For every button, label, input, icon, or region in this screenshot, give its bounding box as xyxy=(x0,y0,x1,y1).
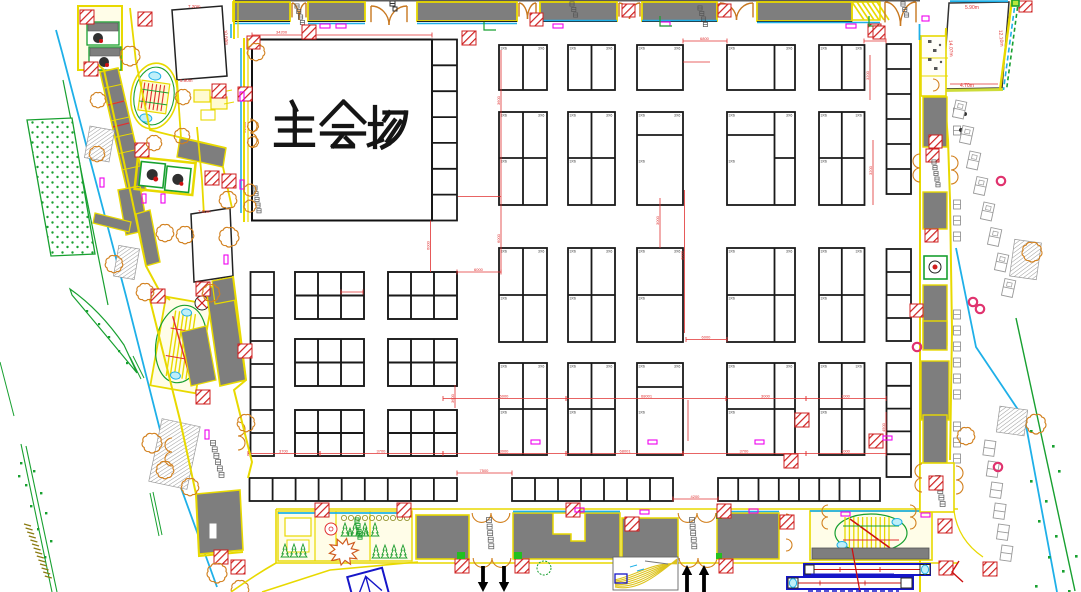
svg-text:3X6: 3X6 xyxy=(639,297,645,301)
svg-text:3X6: 3X6 xyxy=(639,250,645,254)
svg-text:7.00m: 7.00m xyxy=(198,209,211,214)
svg-text:3X6: 3X6 xyxy=(606,47,612,51)
svg-text:6000: 6000 xyxy=(426,240,431,250)
svg-text:3700: 3700 xyxy=(377,448,387,453)
svg-text:3X6: 3X6 xyxy=(856,114,862,118)
svg-text:3X6: 3X6 xyxy=(501,411,507,415)
svg-text:3X6: 3X6 xyxy=(786,250,792,254)
svg-text:4500: 4500 xyxy=(881,422,886,432)
svg-text:6800: 6800 xyxy=(700,36,710,41)
svg-text:3X6: 3X6 xyxy=(606,114,612,118)
svg-text:6000: 6000 xyxy=(500,393,510,398)
svg-text:68001: 68001 xyxy=(641,393,653,398)
svg-text:3X6: 3X6 xyxy=(786,114,792,118)
svg-text:5.90m: 5.90m xyxy=(965,5,979,11)
svg-text:3X6: 3X6 xyxy=(729,47,735,51)
svg-text:3000: 3000 xyxy=(500,448,510,453)
svg-text:3X6: 3X6 xyxy=(729,297,735,301)
svg-text:3X6: 3X6 xyxy=(570,365,576,369)
svg-text:3X6: 3X6 xyxy=(501,47,507,51)
svg-text:3X6: 3X6 xyxy=(639,365,645,369)
svg-text:3700: 3700 xyxy=(279,448,289,453)
svg-text:14.07m: 14.07m xyxy=(947,40,954,57)
svg-text:3X6: 3X6 xyxy=(821,114,827,118)
svg-text:3X6: 3X6 xyxy=(501,114,507,118)
svg-text:3X6: 3X6 xyxy=(501,365,507,369)
svg-text:6000: 6000 xyxy=(702,334,712,339)
svg-text:3X6: 3X6 xyxy=(639,160,645,164)
svg-text:3X6: 3X6 xyxy=(538,47,544,51)
svg-text:3X6: 3X6 xyxy=(674,365,680,369)
svg-text:3X6: 3X6 xyxy=(674,47,680,51)
svg-text:3X6: 3X6 xyxy=(570,297,576,301)
svg-text:3X6: 3X6 xyxy=(639,411,645,415)
svg-text:6000: 6000 xyxy=(474,267,484,272)
svg-text:3X6: 3X6 xyxy=(729,411,735,415)
svg-text:3X6: 3X6 xyxy=(821,160,827,164)
svg-text:68001: 68001 xyxy=(620,448,632,453)
svg-text:3X6: 3X6 xyxy=(674,114,680,118)
svg-text:3X6: 3X6 xyxy=(786,365,792,369)
svg-text:3X6: 3X6 xyxy=(821,365,827,369)
svg-text:3X6: 3X6 xyxy=(501,297,507,301)
svg-text:3X6: 3X6 xyxy=(729,365,735,369)
svg-text:3X6: 3X6 xyxy=(729,250,735,254)
svg-text:3X6: 3X6 xyxy=(606,250,612,254)
svg-text:1000: 1000 xyxy=(841,393,851,398)
svg-text:3X6: 3X6 xyxy=(786,47,792,51)
svg-text:3X6: 3X6 xyxy=(570,250,576,254)
svg-text:3X6: 3X6 xyxy=(538,365,544,369)
svg-text:3X6: 3X6 xyxy=(639,47,645,51)
svg-text:1000: 1000 xyxy=(841,448,851,453)
svg-text:5.90m: 5.90m xyxy=(180,78,193,83)
svg-text:3X6: 3X6 xyxy=(570,411,576,415)
svg-text:6000: 6000 xyxy=(496,233,501,243)
svg-text:3700: 3700 xyxy=(740,448,750,453)
svg-text:3600: 3600 xyxy=(450,393,455,403)
svg-text:3X6: 3X6 xyxy=(856,365,862,369)
svg-text:3000: 3000 xyxy=(680,250,685,260)
svg-text:3X6: 3X6 xyxy=(606,365,612,369)
svg-text:3X6: 3X6 xyxy=(821,47,827,51)
svg-text:3X6: 3X6 xyxy=(856,250,862,254)
svg-text:3X6: 3X6 xyxy=(821,411,827,415)
svg-text:3X6: 3X6 xyxy=(570,160,576,164)
svg-text:4200: 4200 xyxy=(691,494,701,499)
svg-text:3X6: 3X6 xyxy=(639,114,645,118)
svg-text:3X6: 3X6 xyxy=(538,250,544,254)
svg-text:3600: 3600 xyxy=(496,95,501,105)
svg-text:7500: 7500 xyxy=(480,468,490,473)
svg-text:3X6: 3X6 xyxy=(821,250,827,254)
svg-text:3X6: 3X6 xyxy=(729,160,735,164)
svg-text:3200: 3200 xyxy=(868,165,873,175)
svg-text:3X6: 3X6 xyxy=(729,114,735,118)
svg-text:7.20m: 7.20m xyxy=(188,4,201,9)
svg-text:3X6: 3X6 xyxy=(570,47,576,51)
svg-text:3X6: 3X6 xyxy=(856,47,862,51)
svg-text:3X6: 3X6 xyxy=(570,114,576,118)
svg-text:3200: 3200 xyxy=(865,70,870,80)
svg-text:3X6: 3X6 xyxy=(501,250,507,254)
svg-text:3X6: 3X6 xyxy=(501,160,507,164)
svg-text:3000: 3000 xyxy=(761,393,771,398)
svg-text:34200: 34200 xyxy=(276,30,288,35)
svg-text:3X6: 3X6 xyxy=(538,114,544,118)
svg-text:3000: 3000 xyxy=(655,215,660,225)
svg-text:3X6: 3X6 xyxy=(821,297,827,301)
